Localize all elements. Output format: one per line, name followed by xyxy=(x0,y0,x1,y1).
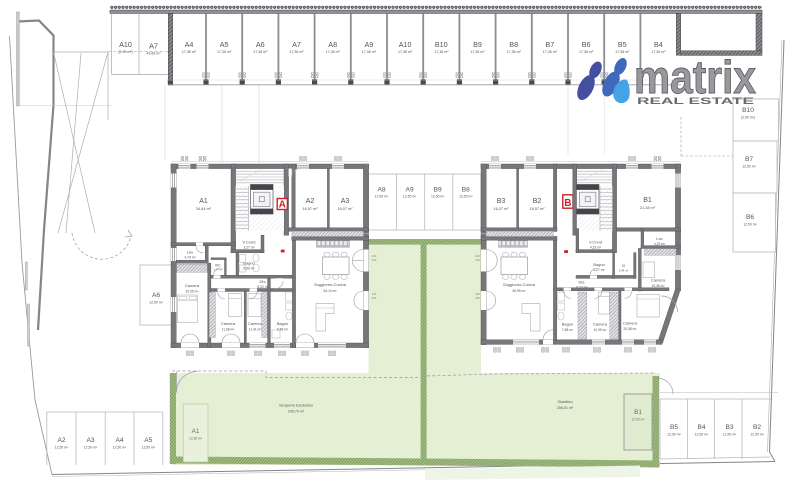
svg-text:V.Cond: V.Cond xyxy=(589,240,602,245)
svg-text:Camera: Camera xyxy=(651,278,666,283)
svg-text:7,88 m²: 7,88 m² xyxy=(562,328,574,332)
svg-text:17,36 m²: 17,36 m² xyxy=(182,50,197,54)
svg-text:256,01 m²: 256,01 m² xyxy=(557,406,574,410)
svg-text:A1: A1 xyxy=(199,198,208,205)
svg-text:12,50 m²: 12,50 m² xyxy=(55,446,69,450)
svg-text:Camera: Camera xyxy=(185,283,200,288)
svg-text:17,36 m²: 17,36 m² xyxy=(326,50,341,54)
svg-text:V.Cond: V.Cond xyxy=(243,240,256,245)
svg-text:A3: A3 xyxy=(341,198,350,205)
svg-text:12,50 m²: 12,50 m² xyxy=(723,433,737,437)
svg-text:8,88 m²: 8,88 m² xyxy=(277,328,289,332)
svg-text:17,36 m²: 17,36 m² xyxy=(579,50,594,54)
svg-text:4,23 m²: 4,23 m² xyxy=(590,245,602,249)
svg-text:12,50 m²: 12,50 m² xyxy=(113,446,127,450)
svg-text:VI: VI xyxy=(622,264,625,268)
svg-text:17,36 m²: 17,36 m² xyxy=(507,50,522,54)
svg-text:Camera: Camera xyxy=(623,321,638,326)
svg-text:Scoperto Esclusivo: Scoperto Esclusivo xyxy=(279,403,314,408)
svg-text:20,58 m²: 20,58 m² xyxy=(623,327,637,331)
svg-text:16,57 m²: 16,57 m² xyxy=(530,207,546,211)
svg-text:Dis.: Dis. xyxy=(579,280,586,285)
svg-text:B8: B8 xyxy=(462,187,470,194)
svg-text:(2,90 m²): (2,90 m²) xyxy=(118,50,133,54)
svg-text:A3: A3 xyxy=(86,437,94,444)
svg-text:B10: B10 xyxy=(742,107,754,114)
svg-text:B10: B10 xyxy=(435,40,448,49)
svg-text:12,50 m²: 12,50 m² xyxy=(403,195,417,199)
svg-text:A1: A1 xyxy=(192,428,200,435)
svg-text:B6: B6 xyxy=(746,214,754,221)
svg-text:3,27 m²: 3,27 m² xyxy=(243,245,255,249)
svg-text:Lav: Lav xyxy=(187,250,193,255)
svg-text:12,50 m²: 12,50 m² xyxy=(743,223,757,227)
svg-text:4,29 m²: 4,29 m² xyxy=(654,242,666,246)
svg-text:260: 260 xyxy=(372,258,377,262)
svg-text:Bagno: Bagno xyxy=(562,322,574,327)
svg-text:4,79 m²: 4,79 m² xyxy=(184,255,196,259)
svg-text:64,14 m²: 64,14 m² xyxy=(323,289,337,293)
svg-text:A7: A7 xyxy=(149,42,158,51)
svg-text:B6: B6 xyxy=(582,40,591,49)
svg-text:20,05 m²: 20,05 m² xyxy=(185,290,199,294)
svg-text:Bagno: Bagno xyxy=(277,321,289,326)
svg-text:17,36 m²: 17,36 m² xyxy=(434,50,449,54)
svg-text:A10: A10 xyxy=(119,40,132,49)
svg-text:11,68 m²: 11,68 m² xyxy=(222,328,236,332)
svg-text:17,36 m²: 17,36 m² xyxy=(289,50,304,54)
svg-text:Dis.: Dis. xyxy=(260,279,267,284)
svg-text:12,50 m²: 12,50 m² xyxy=(84,446,98,450)
svg-text:10,99 m²: 10,99 m² xyxy=(593,328,607,332)
svg-text:A6: A6 xyxy=(152,292,160,299)
svg-text:B9: B9 xyxy=(434,187,442,194)
svg-text:17,36 m²: 17,36 m² xyxy=(362,50,377,54)
svg-text:Lav: Lav xyxy=(656,236,662,241)
svg-text:B1: B1 xyxy=(634,409,642,416)
svg-text:12,50 m²: 12,50 m² xyxy=(750,433,764,437)
svg-text:B9: B9 xyxy=(473,40,482,49)
svg-text:17,36 m²: 17,36 m² xyxy=(217,50,232,54)
svg-text:A8: A8 xyxy=(328,40,337,49)
svg-text:260: 260 xyxy=(372,296,377,300)
svg-text:B5: B5 xyxy=(670,424,678,431)
svg-text:A8: A8 xyxy=(377,187,385,194)
svg-text:11,41 m²: 11,41 m² xyxy=(249,328,263,332)
svg-text:12,50 m²: 12,50 m² xyxy=(742,165,756,169)
svg-text:B8: B8 xyxy=(509,40,518,49)
svg-text:12,50 m²: 12,50 m² xyxy=(189,437,203,441)
svg-text:B4: B4 xyxy=(654,40,663,49)
svg-text:A: A xyxy=(279,200,286,211)
svg-text:12,50 m²: 12,50 m² xyxy=(149,301,163,305)
svg-text:A6: A6 xyxy=(256,40,265,49)
svg-text:REAL ESTATE: REAL ESTATE xyxy=(637,96,754,107)
svg-text:A10: A10 xyxy=(399,40,412,49)
svg-text:B3: B3 xyxy=(497,198,506,205)
svg-text:60,99 m²: 60,99 m² xyxy=(512,289,526,293)
svg-text:17,36 m²: 17,36 m² xyxy=(398,50,413,54)
svg-text:Camera: Camera xyxy=(221,321,236,326)
svg-text:245,70 m²: 245,70 m² xyxy=(288,410,305,414)
svg-text:A4: A4 xyxy=(185,40,194,49)
svg-text:Bagno: Bagno xyxy=(593,262,605,267)
svg-text:A4: A4 xyxy=(115,437,123,444)
svg-text:21,18 m²: 21,18 m² xyxy=(640,206,656,210)
svg-text:B1: B1 xyxy=(643,197,652,204)
svg-text:Soggiorno-Cucina: Soggiorno-Cucina xyxy=(314,282,347,287)
svg-text:260: 260 xyxy=(475,258,480,262)
svg-text:Camera: Camera xyxy=(593,322,608,327)
svg-text:A9: A9 xyxy=(406,187,414,194)
svg-text:B7: B7 xyxy=(546,40,555,49)
svg-text:34,64 m²: 34,64 m² xyxy=(196,207,212,211)
svg-text:Giardino: Giardino xyxy=(557,399,573,404)
svg-text:10,36 m²: 10,36 m² xyxy=(651,284,665,288)
svg-text:12,50 m²: 12,50 m² xyxy=(431,195,445,199)
svg-text:16,07 m²: 16,07 m² xyxy=(494,207,510,211)
svg-text:B2: B2 xyxy=(533,198,542,205)
svg-text:B3: B3 xyxy=(725,424,733,431)
svg-text:17,36 m²: 17,36 m² xyxy=(253,50,268,54)
svg-text:A2: A2 xyxy=(306,198,315,205)
svg-text:A2: A2 xyxy=(57,437,65,444)
svg-text:16,57 m²: 16,57 m² xyxy=(303,207,319,211)
svg-text:12,50 m²: 12,50 m² xyxy=(375,195,389,199)
svg-text:260: 260 xyxy=(475,296,480,300)
svg-text:17,36 m²: 17,36 m² xyxy=(615,50,630,54)
svg-text:B: B xyxy=(564,198,571,209)
svg-text:A5: A5 xyxy=(144,437,152,444)
svg-text:A5: A5 xyxy=(220,40,229,49)
svg-text:(2,50 m²): (2,50 m²) xyxy=(741,116,755,120)
svg-text:12,50 m²: 12,50 m² xyxy=(667,433,681,437)
svg-text:B5: B5 xyxy=(618,40,627,49)
svg-text:17,36 m²: 17,36 m² xyxy=(470,50,485,54)
svg-text:B2: B2 xyxy=(753,424,761,431)
svg-text:12,50 m²: 12,50 m² xyxy=(631,418,645,422)
svg-text:17,36 m²: 17,36 m² xyxy=(543,50,558,54)
svg-text:16,07 m²: 16,07 m² xyxy=(338,207,354,211)
svg-text:1,44 m²: 1,44 m² xyxy=(619,268,629,272)
svg-text:A7: A7 xyxy=(292,40,301,49)
svg-text:12,50 m²: 12,50 m² xyxy=(142,446,156,450)
svg-text:12,50 m²: 12,50 m² xyxy=(459,195,473,199)
svg-text:B4: B4 xyxy=(697,424,705,431)
svg-text:12,50 m²: 12,50 m² xyxy=(695,433,709,437)
svg-text:B7: B7 xyxy=(745,156,753,163)
svg-text:Camera: Camera xyxy=(248,321,263,326)
svg-text:A9: A9 xyxy=(365,40,374,49)
svg-text:Soggiorno-Cucina: Soggiorno-Cucina xyxy=(503,282,536,287)
svg-text:43,66 m²: 43,66 m² xyxy=(146,52,161,56)
